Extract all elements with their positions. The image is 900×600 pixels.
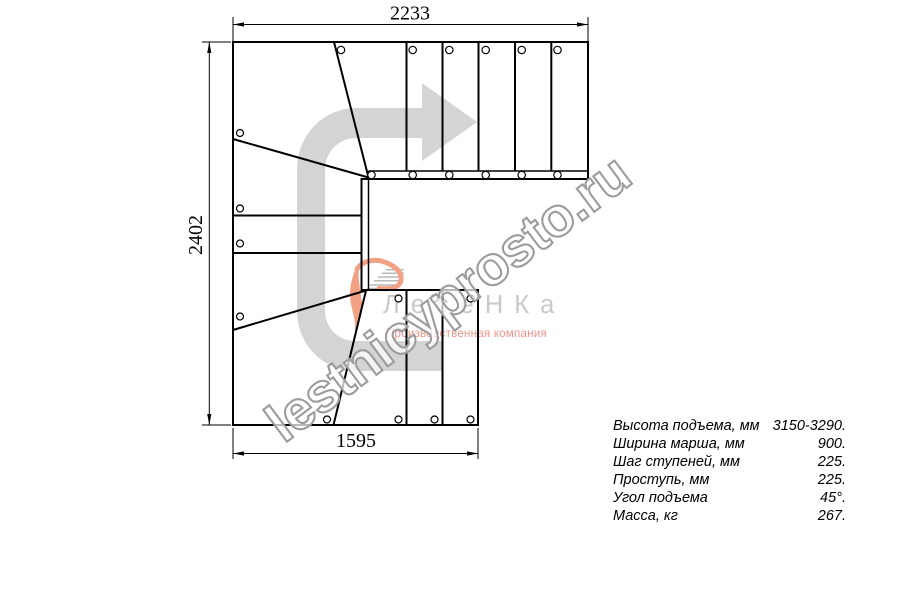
svg-text:45°.: 45°.	[820, 490, 846, 506]
svg-text:Угол подъема: Угол подъема	[612, 490, 708, 506]
svg-text:Шаг ступеней, мм: Шаг ступеней, мм	[613, 454, 740, 470]
svg-text:225.: 225.	[817, 472, 846, 488]
svg-text:1595: 1595	[336, 430, 376, 452]
svg-text:267.: 267.	[817, 508, 846, 524]
svg-text:2233: 2233	[390, 3, 430, 25]
svg-text:900.: 900.	[818, 436, 846, 452]
svg-text:225.: 225.	[817, 454, 846, 470]
svg-text:3150-3290.: 3150-3290.	[773, 418, 846, 434]
svg-text:Масса, кг: Масса, кг	[613, 508, 678, 524]
svg-text:Проступь, мм: Проступь, мм	[613, 472, 709, 488]
svg-text:Высота подъема, мм: Высота подъема, мм	[613, 418, 760, 434]
svg-text:Ширина марша, мм: Ширина марша, мм	[613, 436, 745, 452]
svg-text:2402: 2402	[185, 215, 207, 255]
